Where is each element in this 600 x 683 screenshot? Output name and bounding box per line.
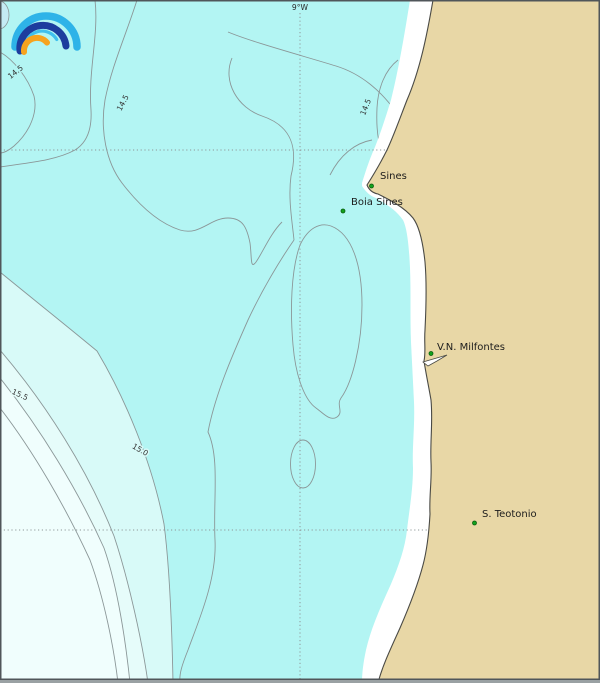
map-window: 14.5 14.5 14.5 15.5 15.0 9°W Sines Boia … [0, 0, 600, 683]
map-canvas[interactable]: 14.5 14.5 14.5 15.5 15.0 9°W Sines Boia … [0, 0, 600, 683]
place-label-vn-milfontes: V.N. Milfontes [437, 342, 505, 353]
place-label-sines: Sines [380, 171, 407, 182]
meridian-label: 9°W [292, 3, 309, 12]
place-label-s-teotonio: S. Teotonio [482, 509, 537, 520]
place-marker-sines [370, 184, 374, 188]
place-marker-boia-sines [341, 209, 345, 213]
place-marker-s-teotonio [473, 521, 477, 525]
place-marker-vn-milfontes [429, 352, 433, 356]
place-label-boia-sines: Boia Sines [351, 197, 403, 208]
